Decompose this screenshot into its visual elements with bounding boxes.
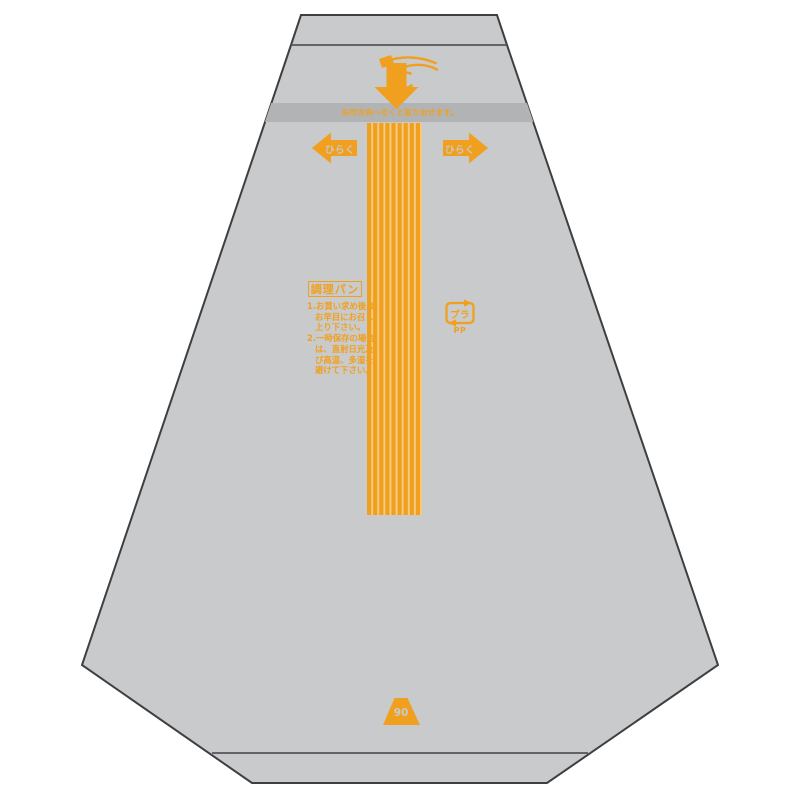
instruction-line: 上り下さい。 [307, 322, 383, 333]
product-type-label: 調理パン [311, 281, 360, 297]
bag-graphics [0, 0, 800, 800]
open-left-label: ひらく [324, 142, 356, 156]
instruction-line: び高温、多湿を [307, 355, 383, 366]
product-type-box: 調理パン [308, 281, 362, 297]
size-number: 90 [386, 707, 416, 719]
instruction-line: 1.お買い求め後は、 [307, 301, 383, 312]
tear-strip-text: 矢印方向へ引くと取り出せます。 [300, 107, 500, 118]
instruction-line: は、直射日光及 [307, 344, 383, 355]
instruction-line: 避けて下さい。 [307, 365, 383, 376]
bag-package-image: 矢印方向へ引くと取り出せます。 ひらく ひらく 調理パン 1.お買い求め後は、お… [0, 0, 800, 800]
instructions-list: 1.お買い求め後は、お早目にお召し上り下さい。2.一時保存の場合は、直射日光及び… [307, 301, 383, 376]
open-right-label: ひらく [444, 142, 476, 156]
instruction-line: 2.一時保存の場合 [307, 333, 383, 344]
recycle-mark-label: プラ [446, 307, 474, 321]
instruction-line: お早目にお召し [307, 312, 383, 323]
material-label: PP [446, 326, 474, 335]
